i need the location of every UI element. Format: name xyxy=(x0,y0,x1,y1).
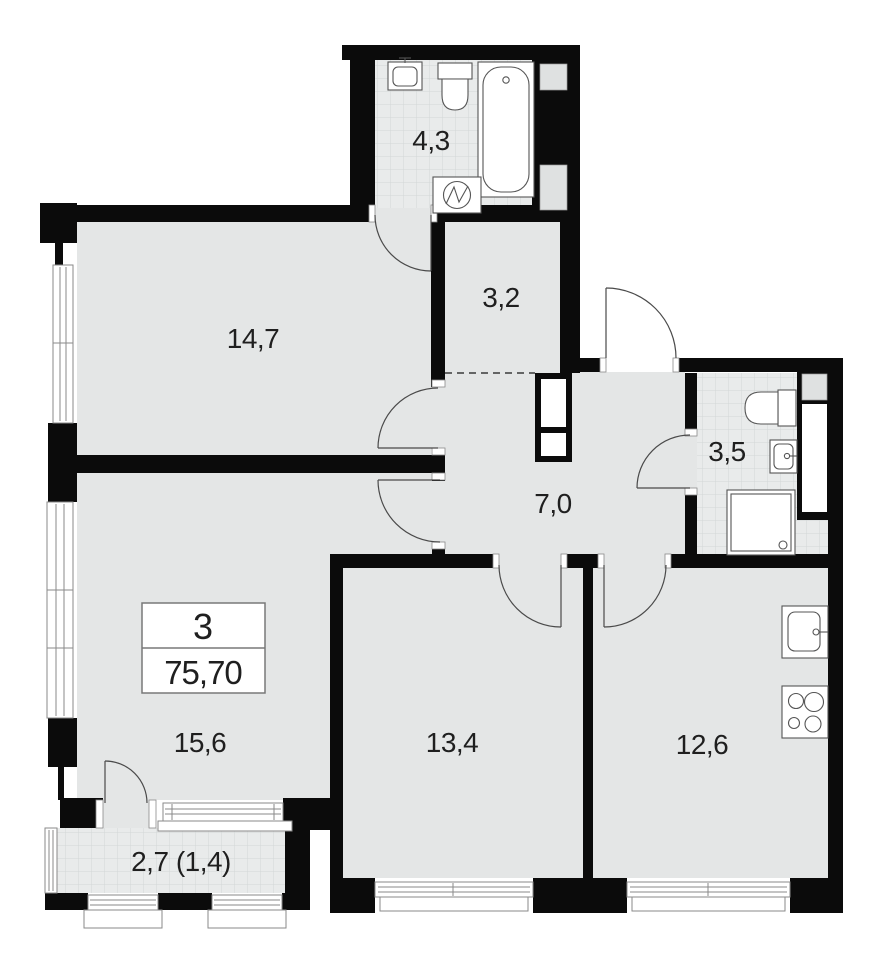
washing-machine-icon xyxy=(433,177,481,213)
unit-rooms-count: 3 xyxy=(193,606,213,647)
window-room-top-left xyxy=(53,265,73,423)
area-label-room-bottom-left: 15,6 xyxy=(174,727,227,758)
area-label-bathroom-top: 4,3 xyxy=(412,125,449,156)
floor-hallway-west xyxy=(445,373,535,554)
bathtub-icon xyxy=(478,62,534,197)
floor-plan-canvas: 3 75,70 4,3 14,7 3,2 7,0 3,5 15,6 13,4 1… xyxy=(0,0,891,960)
shaft-cell xyxy=(540,165,567,210)
area-label-bathroom-right: 3,5 xyxy=(708,436,745,467)
window-balcony-bottom-2 xyxy=(208,895,286,928)
sink-icon xyxy=(770,440,797,473)
shaft-cell xyxy=(540,64,567,90)
area-label-hallway: 7,0 xyxy=(534,488,571,519)
unit-label-box: 3 75,70 xyxy=(142,603,265,693)
floor-entry xyxy=(572,372,685,554)
shaft-cell xyxy=(541,433,566,456)
window-room-bottom-left xyxy=(47,502,73,718)
sink-icon xyxy=(388,58,422,90)
area-label-wardrobe: 3,2 xyxy=(482,282,519,313)
floor-plan-page: 3 75,70 4,3 14,7 3,2 7,0 3,5 15,6 13,4 1… xyxy=(0,0,891,960)
window-balcony-left xyxy=(45,828,57,893)
floor-room-bottom-center xyxy=(343,568,583,878)
toilet-icon xyxy=(438,63,472,110)
toilet-icon xyxy=(745,390,796,426)
window-room-bottom-center xyxy=(375,882,533,911)
area-label-kitchen: 12,6 xyxy=(676,729,729,760)
stove-icon xyxy=(782,686,828,738)
shaft-cell xyxy=(802,404,827,512)
door-entry xyxy=(600,288,679,372)
area-label-balcony: 2,7 (1,4) xyxy=(131,846,231,877)
area-label-room-top-left: 14,7 xyxy=(227,323,280,354)
shaft-cell xyxy=(541,379,566,427)
unit-total-area: 75,70 xyxy=(164,654,242,691)
kitchen-sink-icon xyxy=(782,606,828,658)
shaft-cell xyxy=(802,374,827,400)
area-label-room-bottom-center: 13,4 xyxy=(426,727,479,758)
shower-icon xyxy=(727,490,795,555)
window-room-to-balcony xyxy=(158,803,292,831)
window-kitchen xyxy=(627,882,790,911)
window-balcony-bottom-1 xyxy=(84,895,162,928)
